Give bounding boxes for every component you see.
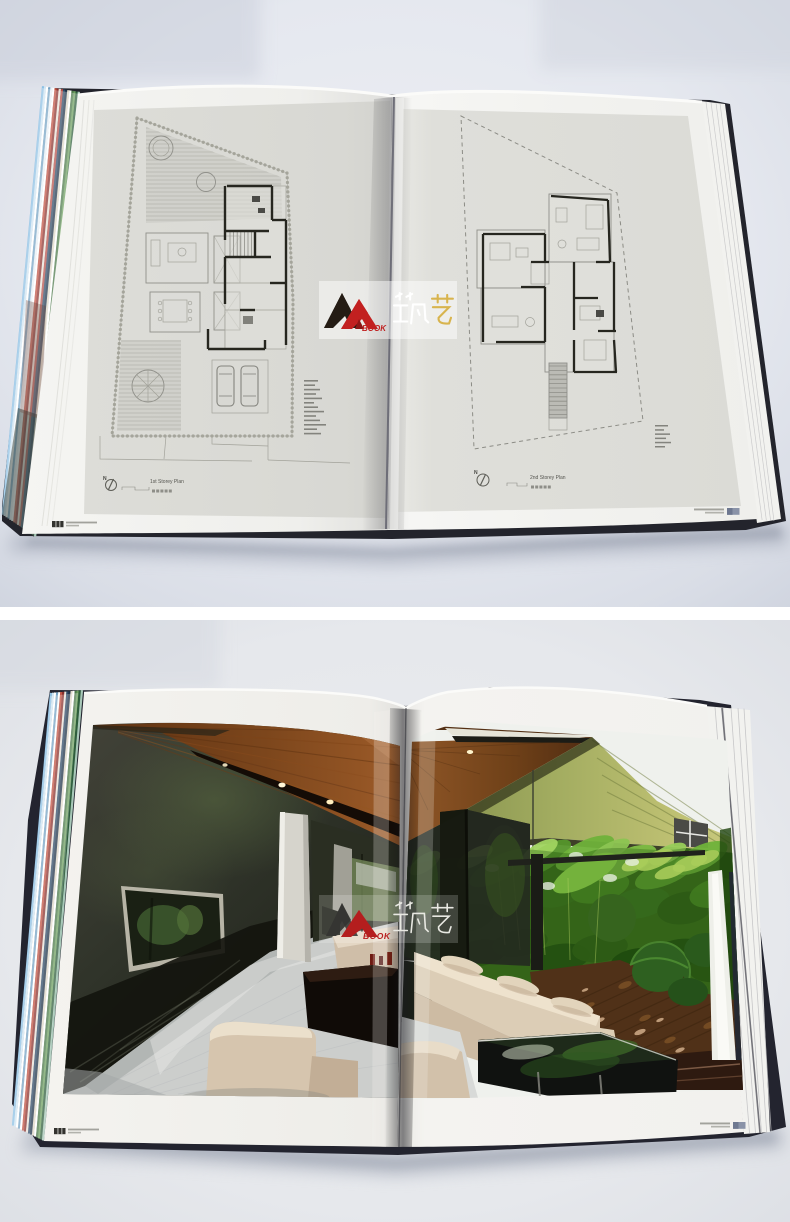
svg-text:N: N (474, 470, 478, 476)
svg-text:2nd Storey Plan: 2nd Storey Plan (530, 475, 566, 481)
svg-text:BOOK: BOOK (363, 931, 391, 941)
svg-text:1st Storey Plan: 1st Storey Plan (150, 479, 184, 485)
svg-text:N: N (103, 476, 107, 482)
svg-text:BOOK: BOOK (362, 324, 387, 333)
